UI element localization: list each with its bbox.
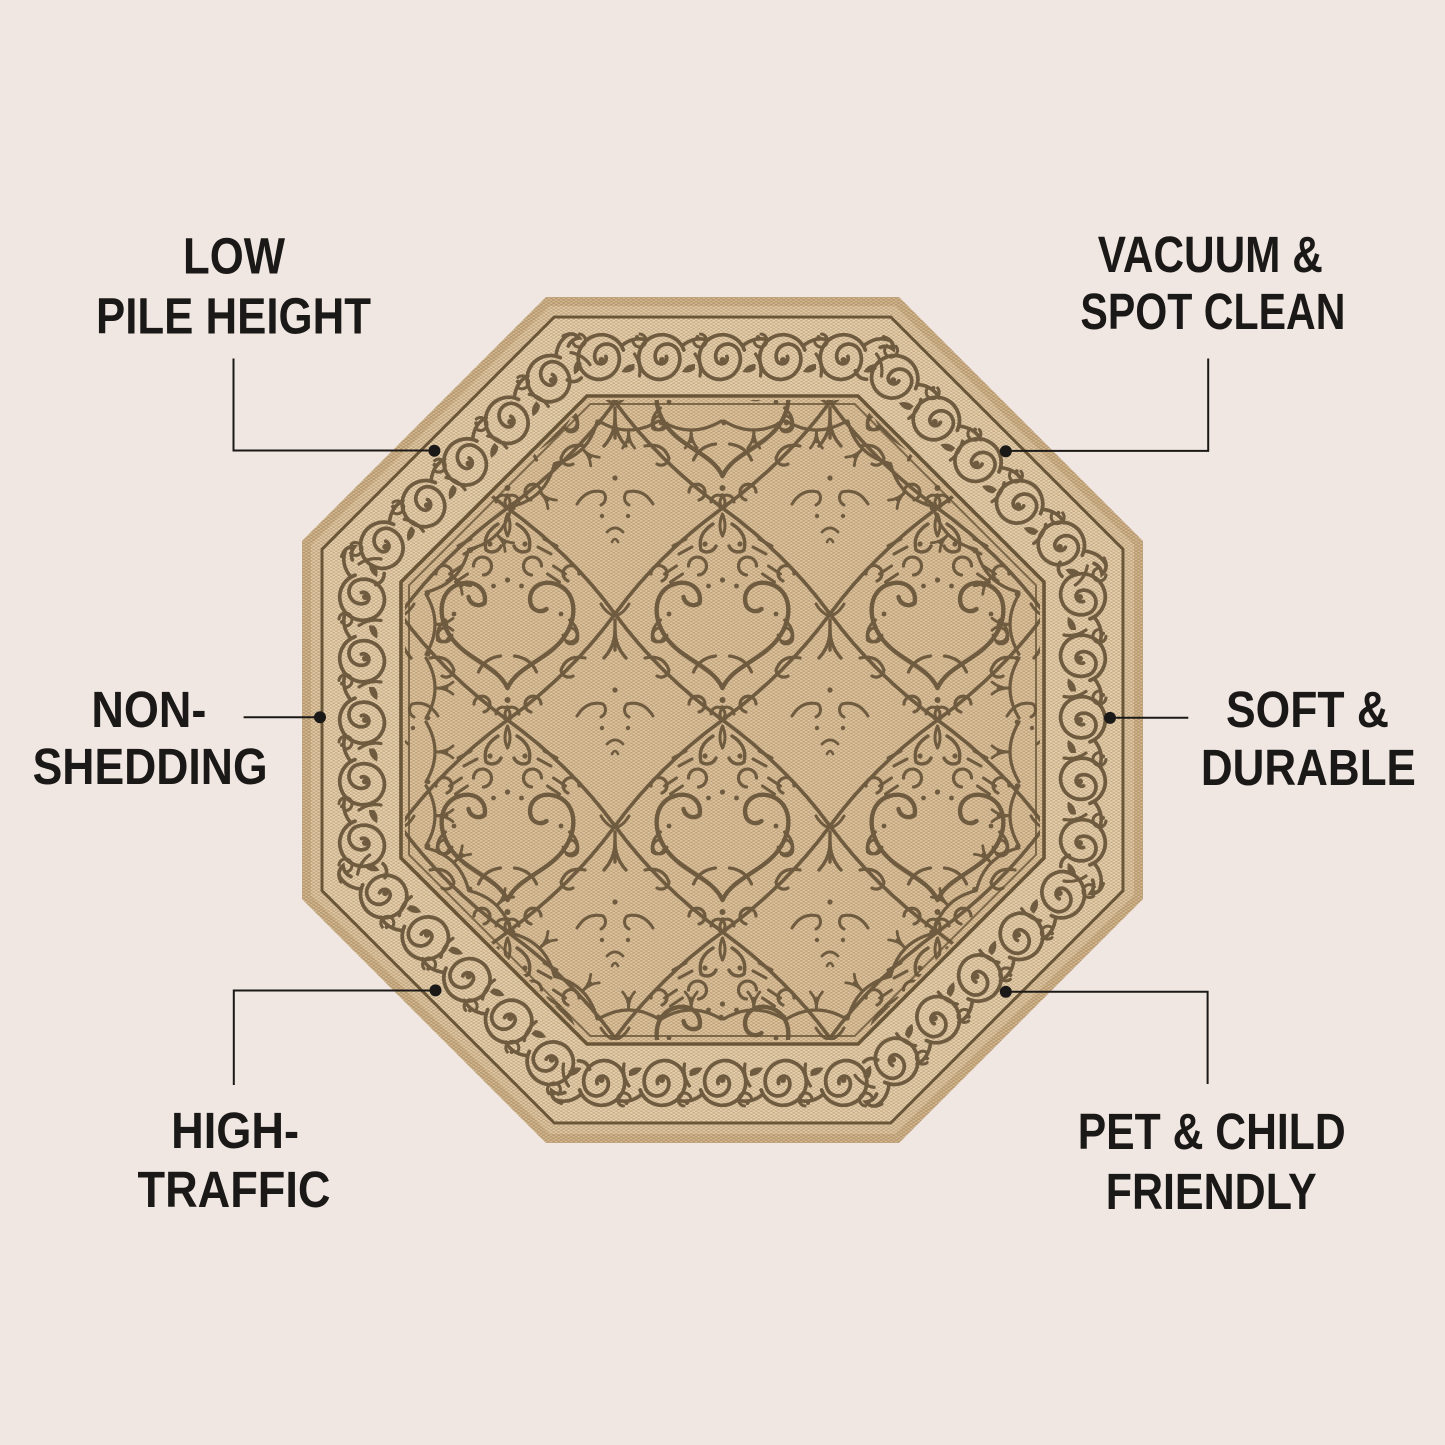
svg-text:HIGH-: HIGH- [171, 1102, 299, 1159]
svg-text:FRIENDLY: FRIENDLY [1106, 1163, 1317, 1220]
svg-text:NON-: NON- [91, 681, 206, 738]
svg-text:SPOT CLEAN: SPOT CLEAN [1080, 283, 1345, 340]
svg-text:TRAFFIC: TRAFFIC [138, 1161, 331, 1218]
svg-text:PILE HEIGHT: PILE HEIGHT [96, 287, 371, 344]
svg-text:LOW: LOW [183, 228, 286, 285]
svg-text:DURABLE: DURABLE [1201, 739, 1416, 796]
svg-text:VACUUM &: VACUUM & [1098, 226, 1323, 283]
svg-text:SHEDDING: SHEDDING [33, 738, 268, 795]
svg-text:SOFT &: SOFT & [1226, 681, 1389, 738]
svg-text:PET & CHILD: PET & CHILD [1078, 1103, 1346, 1160]
